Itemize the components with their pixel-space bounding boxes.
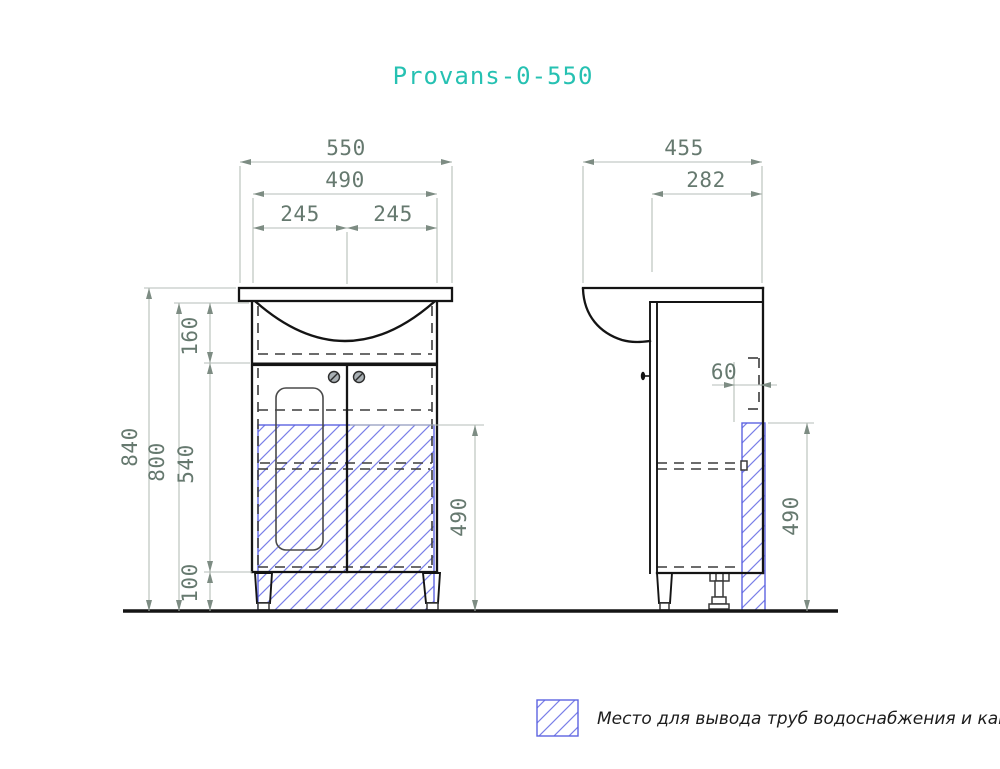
legend-hatch-swatch: [537, 700, 578, 736]
vanity-drawing-svg: Provans-0-550: [0, 0, 1000, 769]
technical-drawing-page: Provans-0-550: [0, 0, 1000, 769]
dim-side-pipe-zone: 490: [768, 423, 814, 611]
dim-245-right-label: 245: [373, 202, 412, 226]
dim-245-left-label: 245: [280, 202, 319, 226]
side-basin-profile: [583, 289, 650, 342]
front-basin-curve: [256, 302, 434, 341]
side-door-panel: [650, 303, 657, 573]
dim-side-depth-total: 455: [583, 136, 762, 283]
dim-800-label: 800: [145, 442, 169, 481]
dim-490-side-pipe-label: 490: [779, 496, 803, 535]
dim-540-label: 540: [174, 444, 198, 483]
dim-455-label: 455: [664, 136, 703, 160]
dim-100-label: 100: [178, 563, 202, 602]
dim-282-label: 282: [686, 168, 725, 192]
dim-160-label: 160: [178, 316, 202, 355]
side-adjustable-foot: [709, 573, 729, 609]
legend: Место для вывода труб водоснабжения и ка…: [537, 700, 1000, 736]
dim-60-label: 60: [711, 360, 737, 384]
front-countertop: [239, 288, 452, 301]
dim-490-front-pipe-label: 490: [447, 497, 471, 536]
side-hidden-lines: [657, 461, 747, 567]
dim-front-half-widths: 245 245: [253, 202, 437, 284]
dim-550-label: 550: [326, 136, 365, 160]
side-view: [583, 288, 765, 611]
page-title: Provans-0-550: [393, 62, 594, 90]
dim-front-width-total: 550: [240, 136, 452, 283]
dim-840-label: 840: [118, 427, 142, 466]
side-legs: [657, 573, 672, 610]
dimensions: 550 490 245 245: [118, 136, 814, 611]
front-view: [239, 288, 452, 611]
front-divider: [252, 363, 437, 367]
side-pipe-opening-dashed: [748, 358, 763, 409]
side-door-knob: [641, 372, 650, 380]
dim-side-depth-inner: 282: [652, 168, 762, 272]
dim-side-pipe-offset: 60: [711, 360, 777, 422]
side-pipe-zone-hatch: [742, 423, 765, 611]
dim-490-label: 490: [325, 168, 364, 192]
legend-label: Место для вывода труб водоснабжения и ка…: [597, 709, 1000, 729]
dim-front-sections: 160 540 100: [174, 303, 252, 611]
side-shelf-support: [741, 461, 747, 470]
